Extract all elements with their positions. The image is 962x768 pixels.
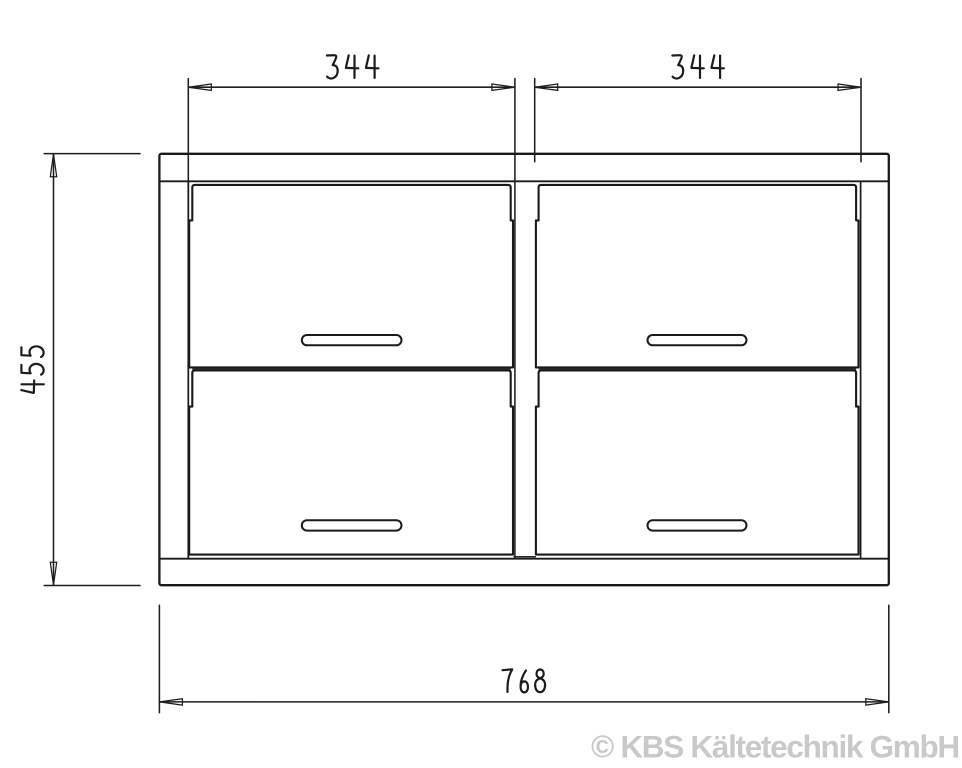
svg-text:© KBS Kältetechnik GmbH: © KBS Kältetechnik GmbH (591, 729, 959, 765)
